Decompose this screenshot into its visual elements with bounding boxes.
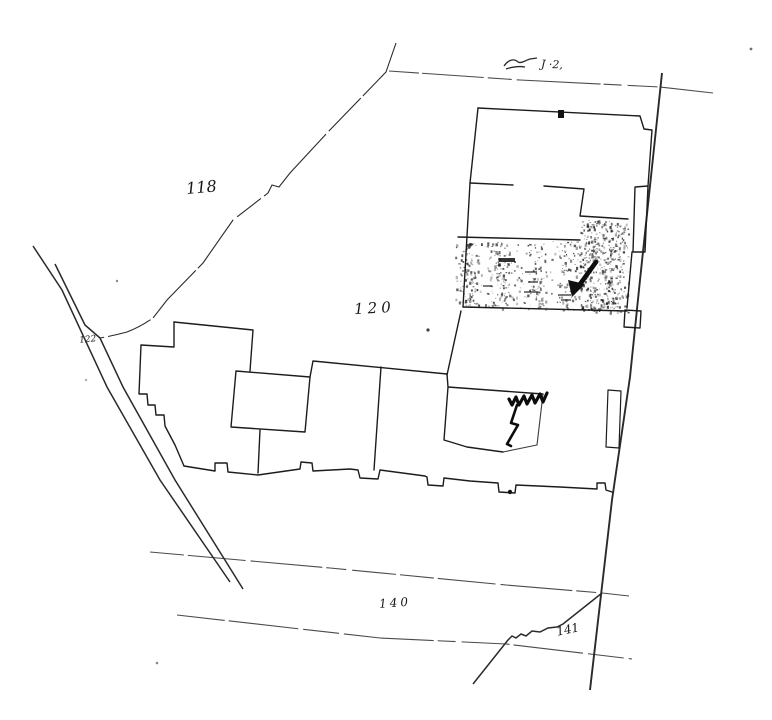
building-north-east: [447, 108, 652, 448]
labels: 118 120 122 140 141 J ·2,: [79, 58, 581, 639]
top-scrawl-squiggle: [504, 58, 537, 69]
top-scrawl-text: J ·2,: [539, 58, 563, 72]
boundary-lines: [100, 43, 713, 690]
south-boundary-line-upper: [150, 552, 629, 596]
stray-dot-1: [426, 328, 429, 331]
ne-building-se-annex: [624, 310, 641, 328]
east-boundary-structure: [606, 390, 621, 448]
ne-building-top-and-right-wall: [478, 108, 652, 186]
row-bottom-jagged-wall: [184, 462, 612, 493]
row-east-building-right-wall: [503, 394, 543, 452]
stray-dot-3: [116, 280, 118, 282]
row-east-building: [444, 374, 543, 452]
parcel-141-boundary: [473, 593, 602, 684]
row-center-annex: [231, 371, 310, 432]
east-boundary-line: [590, 73, 662, 690]
road-east-edge: [55, 264, 243, 589]
scanned-survey-map: 118 120 122 140 141 J ·2,: [0, 0, 772, 720]
north-boundary-line: [389, 71, 713, 93]
stray-dot-5: [85, 379, 87, 381]
row-divider-b: [374, 367, 381, 470]
label-parcel-118: 118: [185, 176, 217, 198]
label-parcel-122: 122: [79, 334, 97, 346]
ne-building-top-tick: [558, 110, 564, 118]
zigzag-scribble-tail: [507, 405, 518, 446]
speckle-texture: [455, 220, 630, 315]
zigzag-scribble-mark: [509, 393, 547, 405]
ink-marks: [85, 48, 752, 665]
road-west-edge: [33, 246, 230, 582]
label-parcel-141: 141: [555, 620, 580, 638]
row-left-building-top: [174, 322, 253, 371]
road-double-line: [33, 246, 243, 589]
label-parcel-120: 120: [354, 298, 396, 318]
stray-dot-4: [156, 662, 159, 665]
ne-building-wall-jog: [627, 186, 648, 308]
row-mid-building-top: [310, 361, 447, 377]
building-row: [139, 322, 612, 493]
speckle-blob: [499, 258, 515, 262]
survey-sketch-svg: 118 120 122 140 141 J ·2,: [0, 0, 772, 720]
row-bottom-dot: [508, 490, 512, 494]
parcel-118-boundary: [100, 43, 396, 338]
stray-dot-2: [750, 48, 753, 51]
ne-building-inner-walls: [458, 183, 628, 240]
label-parcel-140: 140: [379, 595, 412, 611]
row-divider-a: [258, 430, 260, 473]
ne-to-row-connector-wall: [447, 311, 461, 375]
row-left-building-west-steps: [139, 322, 184, 466]
